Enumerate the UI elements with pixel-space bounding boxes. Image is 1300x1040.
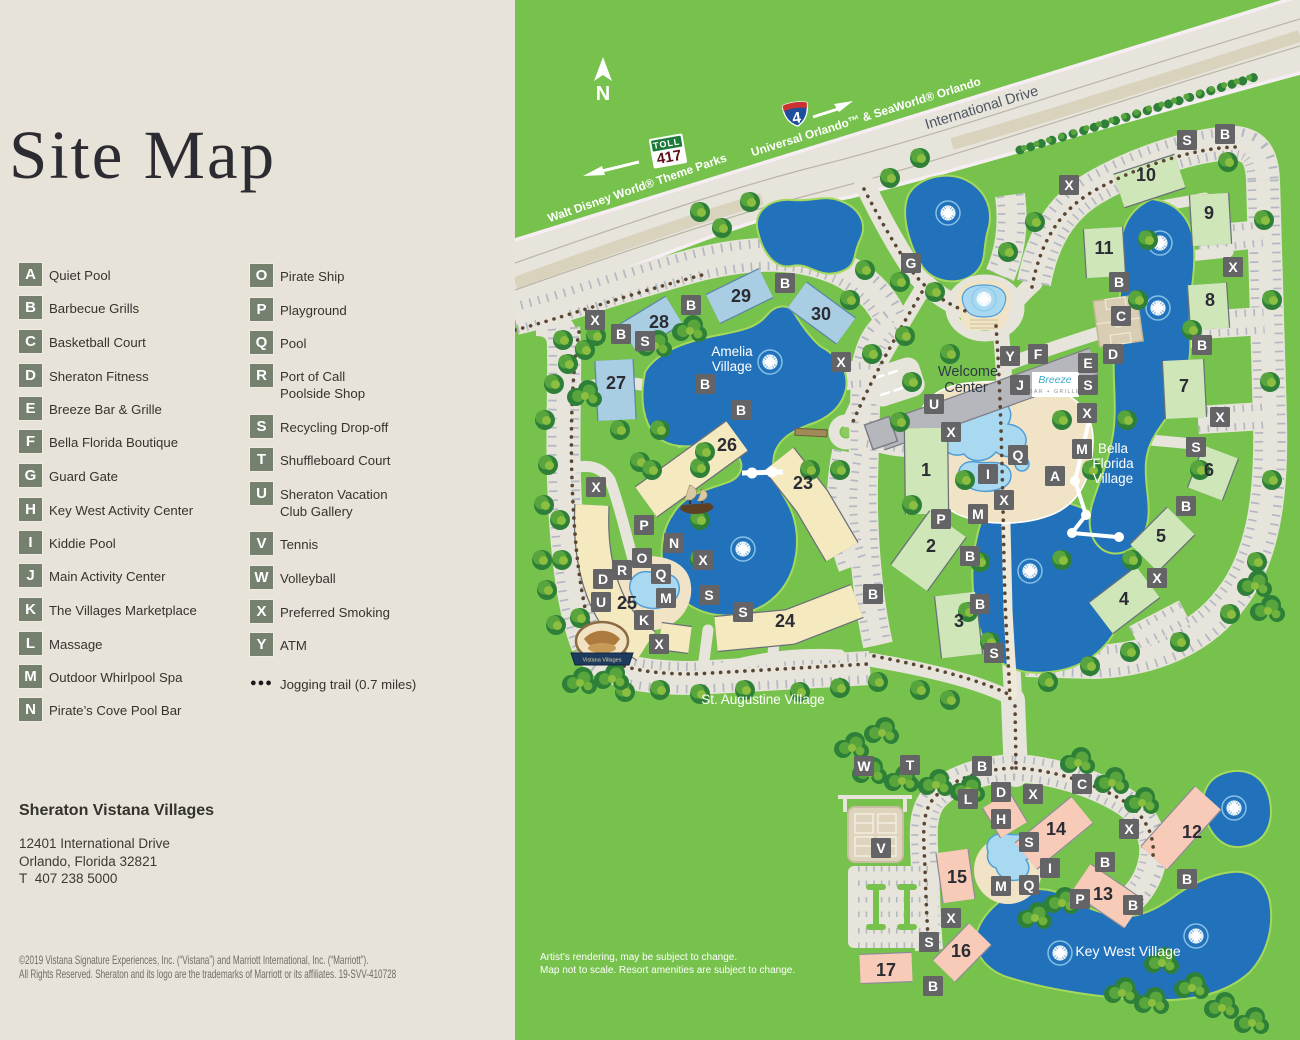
svg-text:29: 29 — [731, 286, 751, 306]
svg-text:X: X — [1152, 570, 1162, 586]
svg-text:B: B — [1100, 854, 1110, 870]
svg-text:Vistana Villages: Vistana Villages — [583, 658, 622, 664]
svg-text:M: M — [972, 506, 984, 522]
svg-text:W: W — [857, 758, 871, 774]
svg-text:M: M — [1076, 441, 1088, 457]
svg-text:X: X — [591, 479, 601, 495]
svg-text:Village: Village — [1093, 471, 1133, 486]
svg-text:U: U — [929, 396, 939, 412]
svg-text:D: D — [996, 784, 1006, 800]
svg-text:X: X — [1124, 821, 1134, 837]
svg-text:S: S — [924, 934, 933, 950]
svg-text:P: P — [1075, 891, 1084, 907]
svg-text:30: 30 — [811, 304, 831, 324]
svg-text:13: 13 — [1093, 884, 1113, 904]
svg-text:B: B — [977, 758, 987, 774]
svg-text:B: B — [616, 326, 626, 342]
svg-text:K: K — [639, 612, 649, 628]
svg-text:B: B — [928, 978, 938, 994]
svg-text:X: X — [946, 910, 956, 926]
svg-text:N: N — [669, 535, 679, 551]
svg-text:Key West Village: Key West Village — [1075, 943, 1181, 959]
svg-text:Center: Center — [944, 380, 988, 396]
svg-text:B: B — [868, 586, 878, 602]
svg-text:10: 10 — [1136, 165, 1156, 185]
svg-text:26: 26 — [717, 435, 737, 455]
svg-text:S: S — [1182, 132, 1191, 148]
svg-text:14: 14 — [1046, 819, 1066, 839]
svg-text:M: M — [995, 878, 1007, 894]
svg-text:7: 7 — [1179, 376, 1189, 396]
svg-text:B: B — [1220, 126, 1230, 142]
svg-text:9: 9 — [1204, 203, 1214, 223]
svg-text:Amelia: Amelia — [711, 344, 753, 359]
svg-text:H: H — [996, 811, 1006, 827]
svg-text:X: X — [1082, 405, 1092, 421]
svg-text:F: F — [1034, 346, 1043, 362]
svg-text:V: V — [876, 840, 886, 856]
svg-text:B: B — [736, 402, 746, 418]
svg-text:S: S — [1191, 439, 1200, 455]
svg-text:S: S — [1083, 377, 1092, 393]
svg-text:B: B — [686, 297, 696, 313]
svg-text:X: X — [1215, 409, 1225, 425]
svg-text:11: 11 — [1094, 238, 1113, 258]
svg-text:G: G — [906, 255, 917, 271]
svg-text:X: X — [1228, 259, 1238, 275]
svg-text:B: B — [780, 275, 790, 291]
svg-text:8: 8 — [1205, 290, 1215, 310]
svg-text:5: 5 — [1156, 526, 1166, 546]
svg-text:2: 2 — [926, 536, 936, 556]
svg-text:24: 24 — [775, 611, 795, 631]
svg-text:B: B — [1181, 498, 1191, 514]
svg-text:S: S — [704, 587, 713, 603]
svg-text:Q: Q — [656, 566, 667, 582]
svg-text:R: R — [617, 562, 627, 578]
svg-text:D: D — [1108, 346, 1118, 362]
svg-text:N: N — [596, 83, 610, 105]
svg-text:D: D — [598, 571, 608, 587]
svg-text:Welcome: Welcome — [938, 364, 998, 380]
svg-text:X: X — [698, 552, 708, 568]
svg-text:O: O — [637, 550, 648, 566]
svg-text:M: M — [660, 590, 672, 606]
svg-text:X: X — [654, 636, 664, 652]
svg-text:St. Augustine Village: St. Augustine Village — [701, 692, 825, 707]
svg-text:X: X — [999, 492, 1009, 508]
svg-text:I: I — [986, 466, 990, 482]
svg-text:Bella: Bella — [1098, 441, 1129, 456]
svg-text:C: C — [1077, 776, 1087, 792]
svg-text:X: X — [836, 354, 846, 370]
svg-text:A: A — [1050, 468, 1060, 484]
svg-text:S: S — [1024, 834, 1033, 850]
svg-text:Florida: Florida — [1092, 456, 1134, 471]
svg-text:28: 28 — [649, 312, 669, 332]
svg-text:C: C — [1116, 308, 1126, 324]
svg-text:Breeze: Breeze — [1038, 374, 1071, 386]
svg-text:I: I — [1048, 860, 1052, 876]
svg-text:Village: Village — [712, 359, 752, 374]
svg-text:P: P — [639, 517, 648, 533]
svg-text:T: T — [906, 757, 915, 773]
svg-text:X: X — [1064, 177, 1074, 193]
svg-text:B: B — [700, 376, 710, 392]
svg-text:27: 27 — [606, 373, 626, 393]
svg-text:S: S — [989, 645, 998, 661]
svg-text:B: B — [1182, 871, 1192, 887]
svg-text:B: B — [1114, 274, 1124, 290]
svg-text:6: 6 — [1204, 460, 1214, 480]
svg-text:4: 4 — [1119, 589, 1129, 609]
svg-text:15: 15 — [947, 867, 967, 887]
svg-text:25: 25 — [617, 593, 637, 613]
svg-text:U: U — [596, 594, 606, 610]
svg-text:X: X — [946, 424, 956, 440]
svg-text:B: B — [1128, 897, 1138, 913]
svg-text:B: B — [965, 548, 975, 564]
svg-text:E: E — [1083, 355, 1092, 371]
svg-text:J: J — [1016, 377, 1024, 393]
svg-text:16: 16 — [951, 941, 971, 961]
svg-text:B: B — [975, 596, 985, 612]
svg-text:1: 1 — [921, 460, 931, 480]
svg-text:S: S — [640, 333, 649, 349]
svg-text:Y: Y — [1005, 348, 1015, 364]
svg-text:B: B — [1197, 337, 1207, 353]
svg-text:X: X — [1028, 786, 1038, 802]
svg-text:BAR + GRILLE: BAR + GRILLE — [1029, 389, 1081, 395]
svg-text:L: L — [964, 791, 973, 807]
svg-text:Q: Q — [1013, 447, 1024, 463]
svg-text:P: P — [936, 511, 945, 527]
svg-text:Map not to scale. Resort ameni: Map not to scale. Resort amenities are s… — [540, 965, 795, 976]
svg-text:X: X — [590, 312, 600, 328]
svg-text:Q: Q — [1024, 877, 1035, 893]
svg-text:12: 12 — [1182, 822, 1202, 842]
svg-text:23: 23 — [793, 473, 813, 493]
svg-text:Artist’s rendering, may be sub: Artist’s rendering, may be subject to ch… — [540, 952, 737, 963]
svg-text:17: 17 — [876, 960, 896, 980]
svg-text:S: S — [738, 604, 747, 620]
svg-text:3: 3 — [954, 611, 964, 631]
